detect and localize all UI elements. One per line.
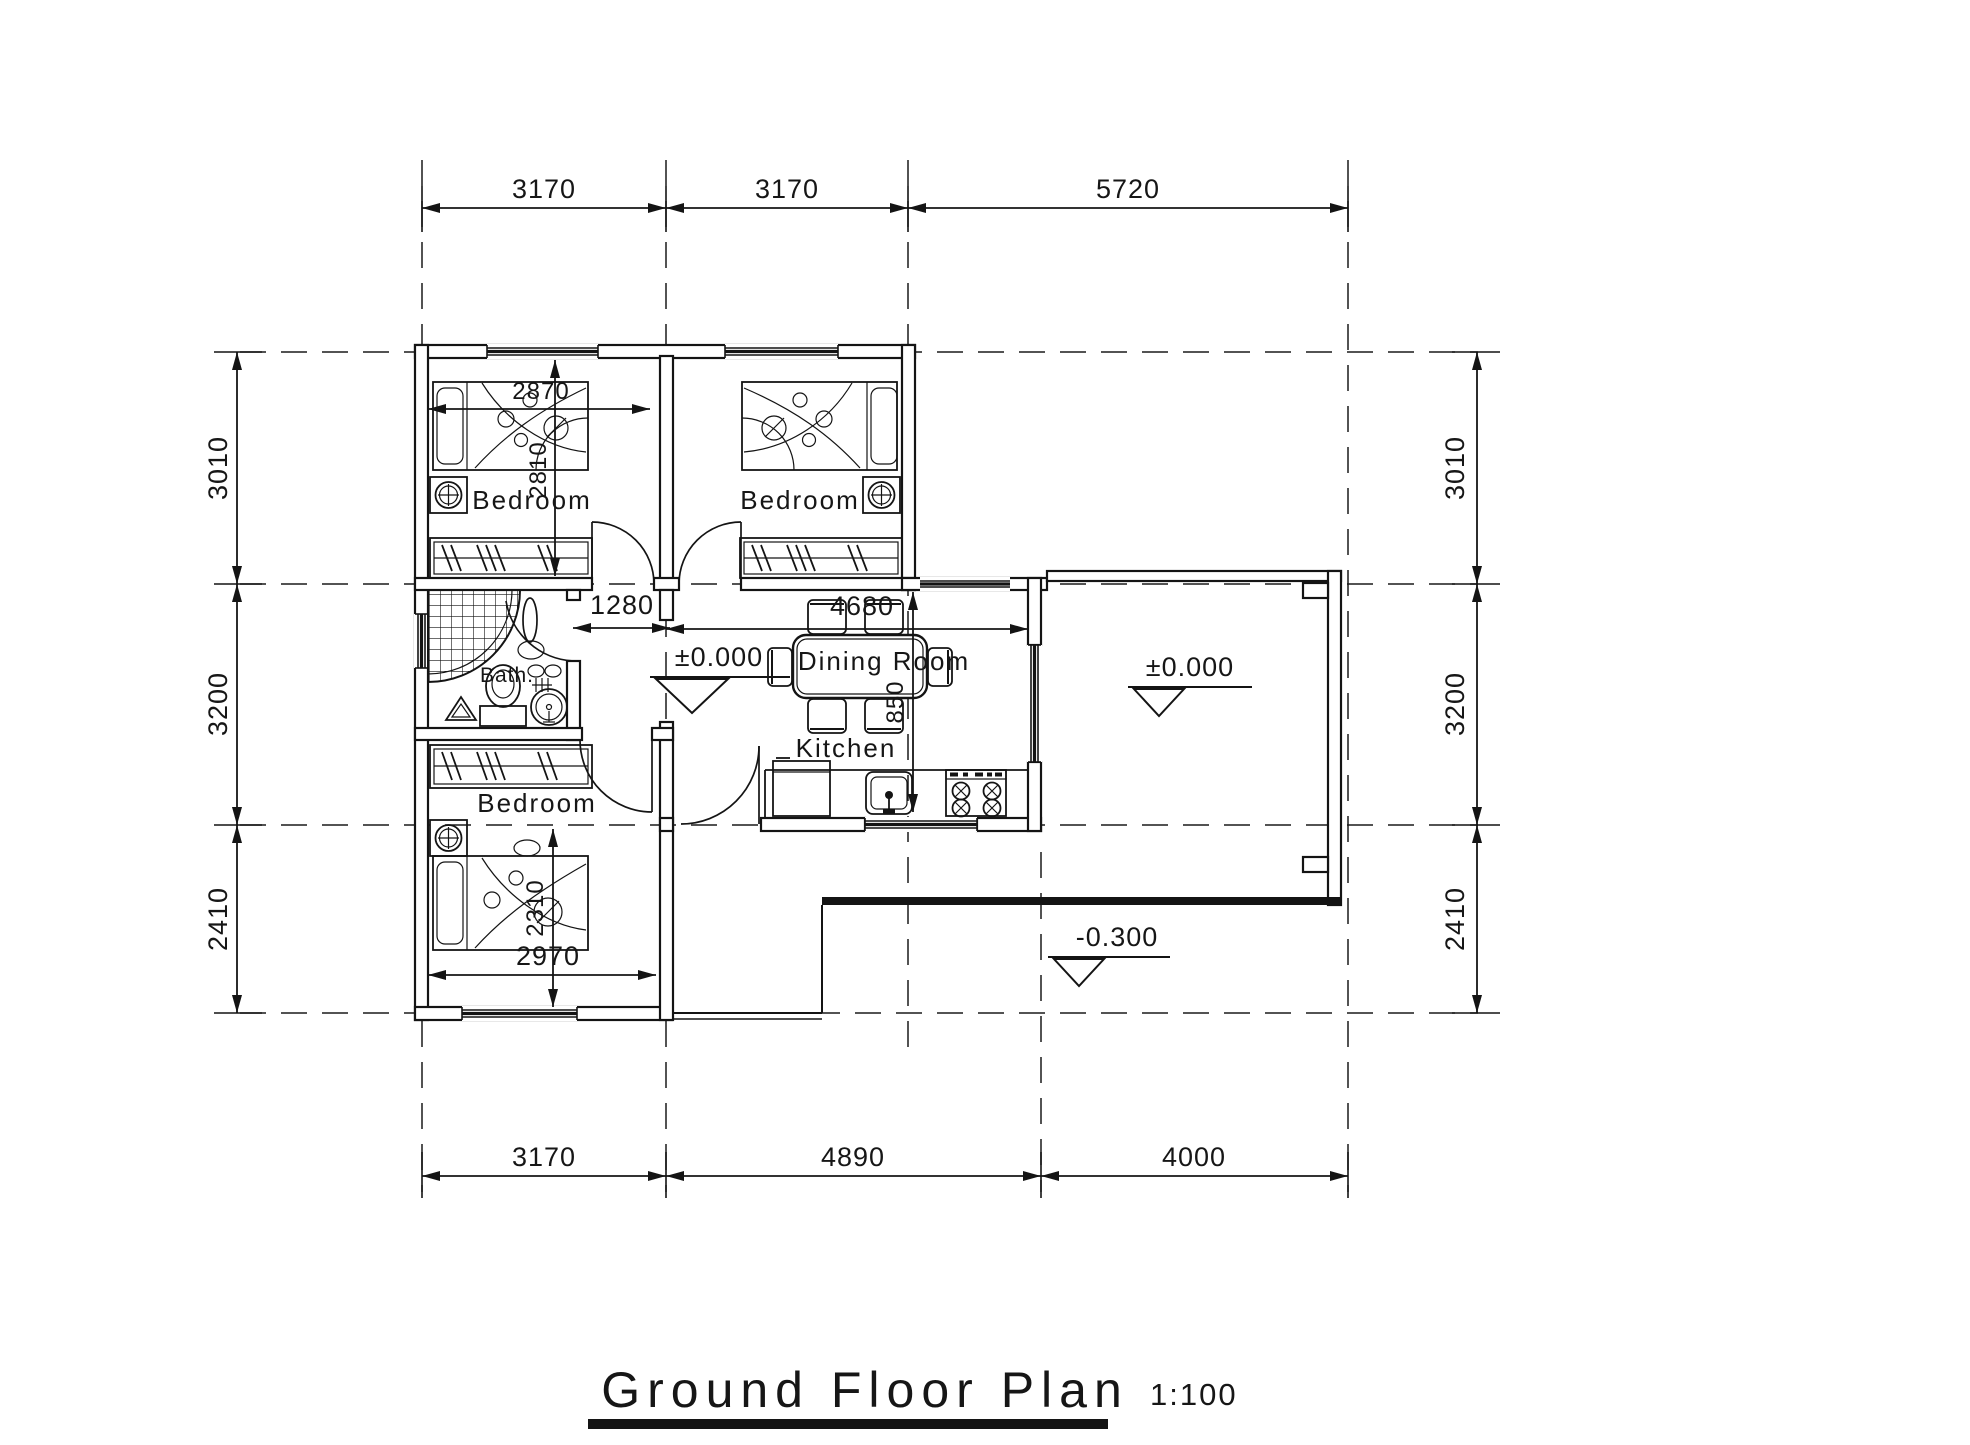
dim-label: 4000 [1162, 1142, 1226, 1172]
ground-floor-plan-drawing: 3170 3170 5720 3170 4890 4000 3010 3200 … [0, 0, 1970, 1445]
dim-label: 4680 [830, 591, 894, 621]
door-entrance [681, 746, 759, 824]
room-label-bedroom3: Bedroom [477, 788, 597, 818]
nightstand-icon [863, 477, 900, 513]
door-bedroom2 [679, 522, 741, 584]
dim-label: 3200 [1440, 672, 1470, 736]
level-marker-yard: -0.300 [1048, 922, 1170, 986]
title-block: Ground Floor Plan 1:100 [588, 1362, 1238, 1429]
dim-label: 2310 [522, 879, 549, 936]
bedroom2-furniture [740, 382, 902, 578]
dimension-right: 3010 3200 2410 [1440, 352, 1500, 1013]
wardrobe-icon [740, 538, 902, 578]
page-title: Ground Floor Plan [601, 1362, 1129, 1418]
level-label: ±0.000 [675, 642, 763, 672]
level-label: -0.300 [1076, 922, 1159, 952]
window-dining-east [1027, 645, 1042, 762]
sink-icon [531, 689, 567, 725]
dim-label: 3010 [203, 436, 233, 500]
wardrobe-icon [430, 538, 592, 578]
level-marker-hall: ±0.000 [650, 642, 790, 713]
room-label-dining: Dining Room [798, 646, 970, 676]
window-dining-north [920, 577, 1010, 591]
dim-label: 4890 [821, 1142, 885, 1172]
level-marker-terrace: ±0.000 [1128, 652, 1252, 716]
dim-label: 2970 [516, 941, 580, 971]
bedroom3-furniture [430, 745, 592, 950]
room-label-bedroom1: Bedroom [472, 485, 592, 515]
dimension-bottom: 3170 4890 4000 [422, 1142, 1348, 1198]
dim-label: 850 [882, 680, 909, 723]
dim-label: 3010 [1440, 436, 1470, 500]
kitchen-sink-icon [866, 772, 912, 814]
room-label-kitchen: Kitchen [796, 733, 897, 763]
level-label: ±0.000 [1146, 652, 1234, 682]
window-bath [414, 614, 429, 668]
dim-label: 2410 [1440, 887, 1470, 951]
dim-label: 3170 [512, 174, 576, 204]
drawing-sheet: 3170 3170 5720 3170 4890 4000 3010 3200 … [0, 0, 1970, 1445]
dim-label: 2410 [203, 887, 233, 951]
dim-label: 1280 [590, 590, 654, 620]
window-kitchen [865, 817, 977, 832]
window-bedroom2 [725, 344, 838, 359]
room-label-bath: Bath. [480, 664, 534, 687]
window-bedroom1 [487, 344, 598, 359]
chair-icon [808, 699, 846, 733]
dim-label: 3170 [512, 1142, 576, 1172]
bedroom1-furniture [430, 382, 592, 578]
nightstand-icon [430, 477, 467, 513]
chair-icon [768, 648, 792, 686]
dim-label: 3170 [755, 174, 819, 204]
stove-icon [946, 770, 1006, 817]
dim-label: 5720 [1096, 174, 1160, 204]
door-bedroom1 [592, 522, 654, 584]
dim-label: 2870 [512, 378, 569, 405]
dimension-left: 3010 3200 2410 [203, 352, 262, 1013]
drawing-scale: 1:100 [1150, 1377, 1238, 1412]
bath-fixtures [428, 590, 567, 726]
fridge-icon [773, 758, 830, 816]
window-bedroom3 [462, 1006, 577, 1021]
dim-label: 3200 [203, 672, 233, 736]
kitchen-furniture [765, 758, 1028, 818]
floor-drain-icon [446, 697, 476, 720]
dimension-top: 3170 3170 5720 [422, 174, 1348, 232]
wardrobe-icon [430, 745, 592, 788]
room-label-bedroom2: Bedroom [740, 485, 860, 515]
